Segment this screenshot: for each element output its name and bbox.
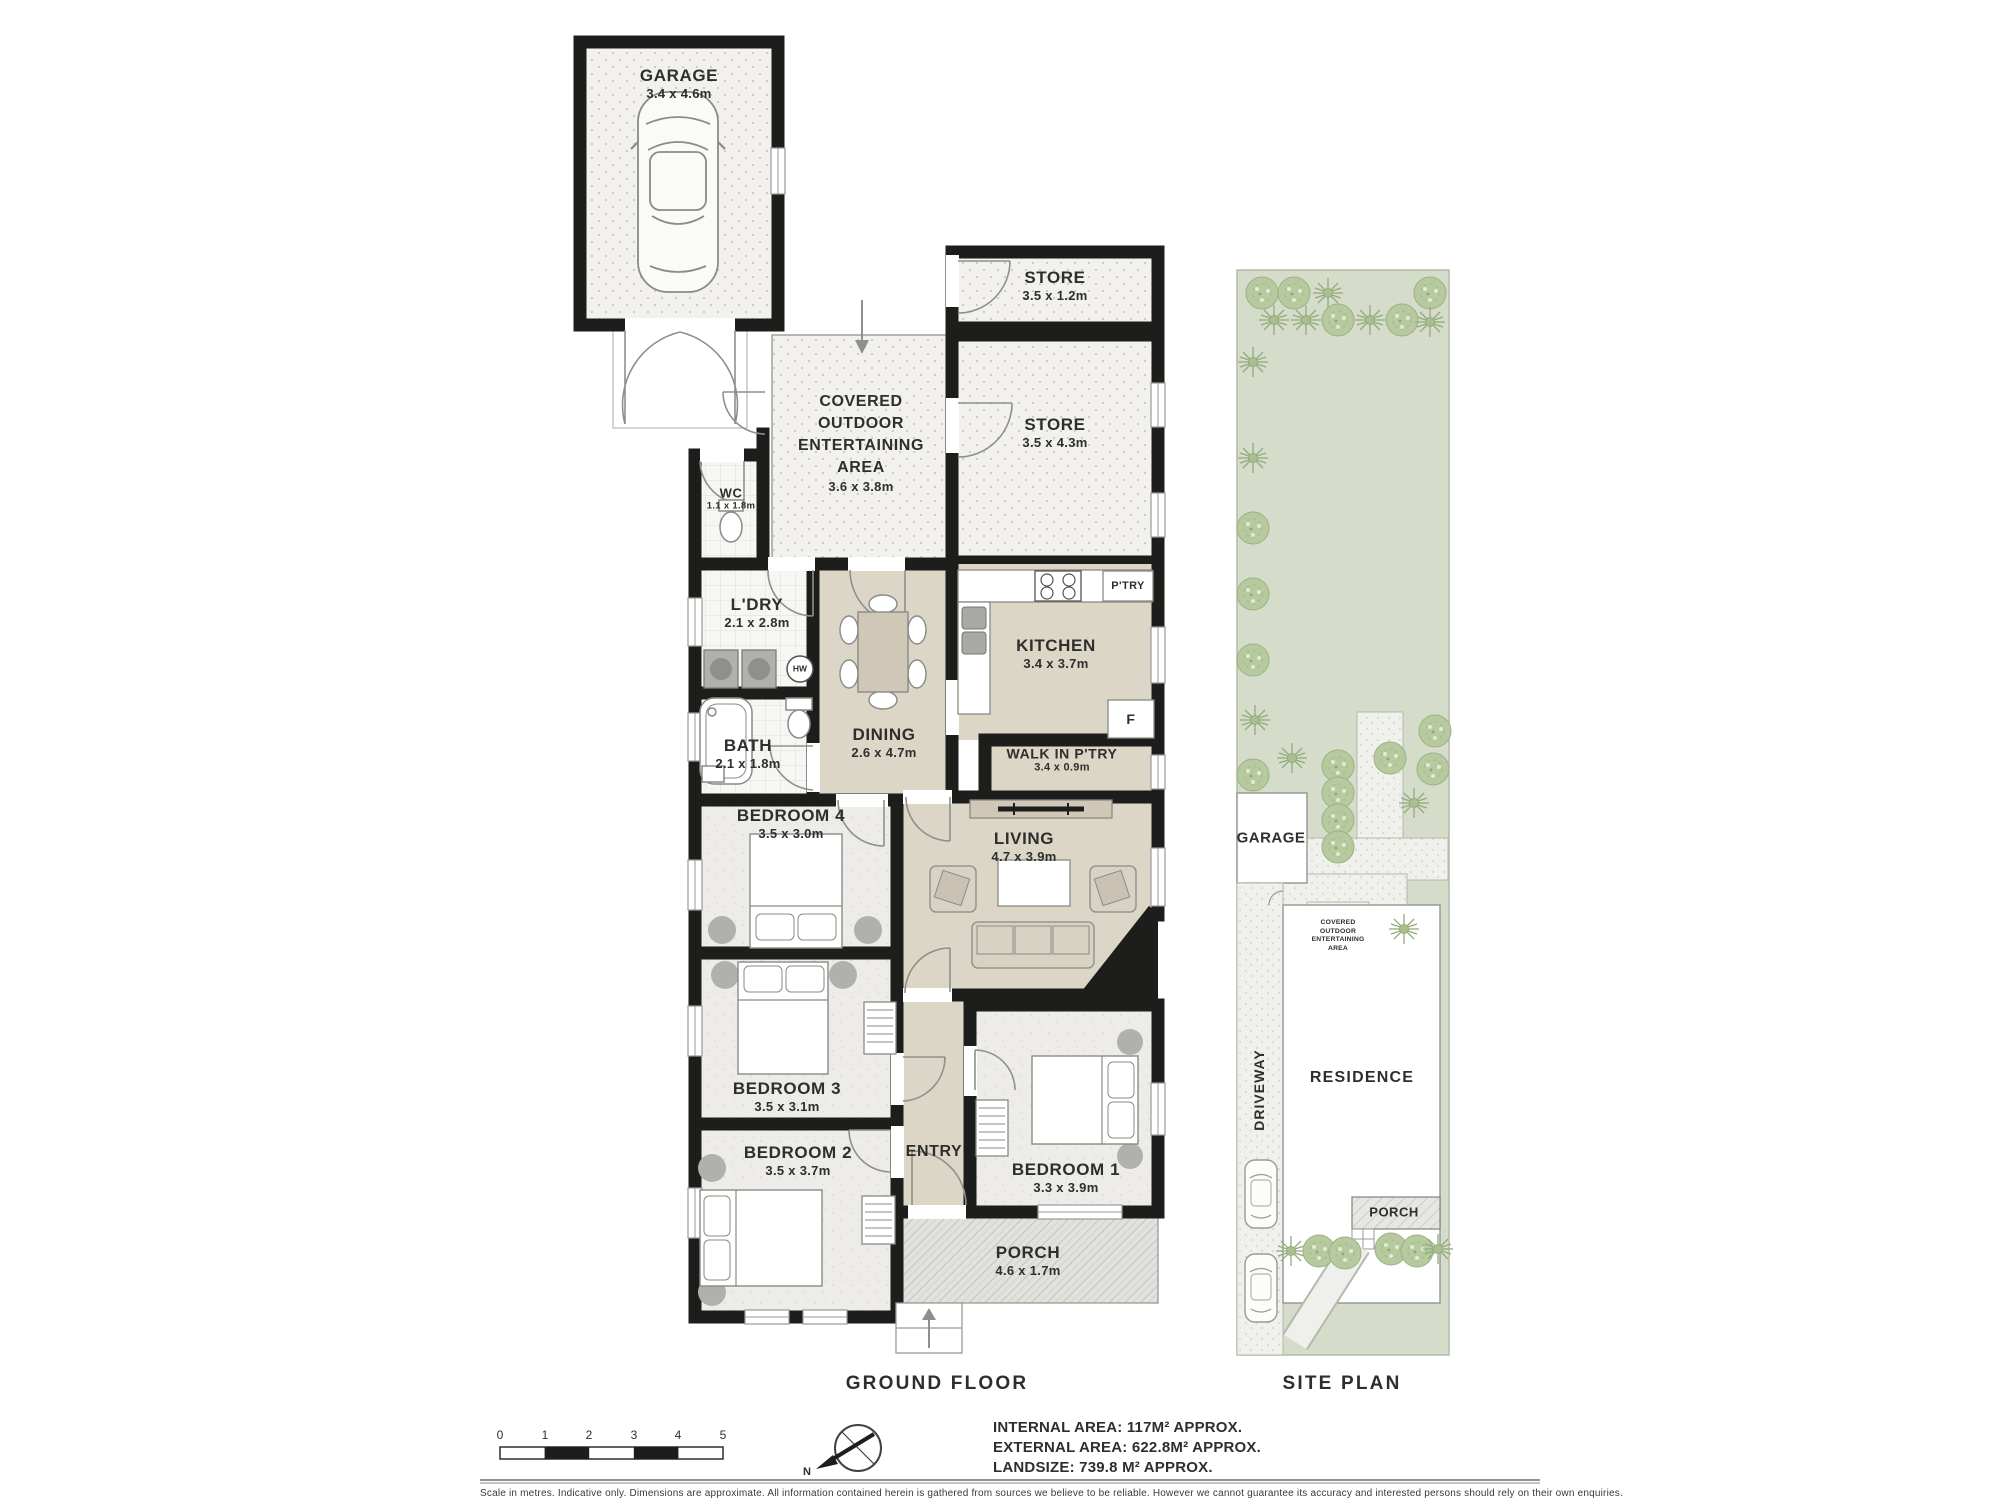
sink-icon (962, 607, 986, 629)
plan-drawing (0, 0, 2000, 1500)
hot-water-icon (787, 656, 813, 682)
store-large-room (952, 335, 1158, 562)
site-garage (1237, 793, 1307, 883)
floor-plan-graphics (580, 42, 1165, 1353)
pantry-cupboard (1103, 571, 1153, 601)
scale-bar (500, 1447, 723, 1459)
laundry-appliances (704, 650, 813, 688)
store-small-room (952, 252, 1158, 328)
site-plan-graphics (1237, 270, 1453, 1355)
car-icon (1245, 1254, 1277, 1322)
coffee-table-icon (998, 860, 1070, 906)
compass-icon (816, 1425, 881, 1471)
sofa-icon (972, 922, 1094, 968)
legend-graphics (480, 1425, 1540, 1483)
car-icon (631, 92, 725, 292)
fridge-icon (1108, 700, 1154, 738)
site-porch (1352, 1197, 1440, 1229)
outdoor-entertaining-floor (772, 335, 952, 562)
porch-steps (896, 1303, 962, 1353)
car-icon (1245, 1160, 1277, 1228)
floorplan-page: GARAGE 3.4 x 4.6m STORE 3.5 x 1.2m STORE… (0, 0, 2000, 1500)
porch-floor (897, 1212, 1158, 1303)
